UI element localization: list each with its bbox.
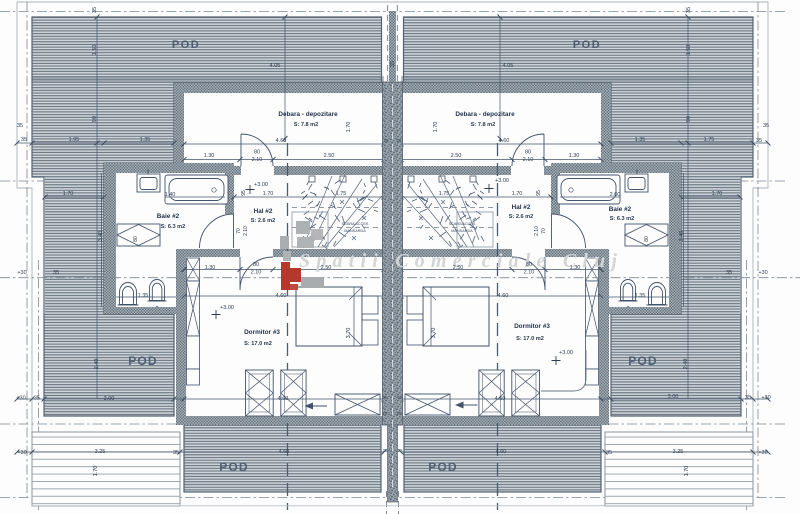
svg-text:2.10: 2.10 <box>523 157 534 163</box>
svg-text:3.70: 3.70 <box>431 328 437 339</box>
svg-text:1.70: 1.70 <box>433 122 439 133</box>
svg-text:1.35: 1.35 <box>635 137 646 143</box>
svg-text:80: 80 <box>254 150 260 156</box>
svg-text:4.60: 4.60 <box>498 293 509 299</box>
svg-text:1.75: 1.75 <box>439 191 450 197</box>
svg-text:4.60: 4.60 <box>495 396 506 402</box>
svg-text:1.70: 1.70 <box>512 191 523 197</box>
svg-text:MANSARDA: MANSARDA <box>344 229 366 233</box>
svg-text:35: 35 <box>92 7 98 13</box>
svg-text:35: 35 <box>17 123 23 129</box>
svg-text:+3.00: +3.00 <box>254 182 268 188</box>
svg-text:35: 35 <box>745 395 751 401</box>
svg-text:25: 25 <box>396 411 402 416</box>
svg-text:1.35: 1.35 <box>140 137 151 143</box>
svg-text:1.30: 1.30 <box>569 153 580 159</box>
svg-text:2.10: 2.10 <box>243 226 249 236</box>
svg-text:80: 80 <box>525 150 531 156</box>
svg-text:1.35: 1.35 <box>138 293 149 299</box>
svg-text:2.60: 2.60 <box>610 192 621 198</box>
svg-text:4.60: 4.60 <box>278 396 289 402</box>
svg-text:70: 70 <box>541 228 547 234</box>
svg-text:POD: POD <box>573 39 601 51</box>
svg-text:35: 35 <box>21 137 27 143</box>
svg-text:35: 35 <box>763 123 769 129</box>
svg-text:2.50: 2.50 <box>451 153 462 159</box>
svg-text:95: 95 <box>536 190 542 196</box>
svg-text:1.70: 1.70 <box>63 191 74 197</box>
svg-text:25: 25 <box>383 138 389 143</box>
svg-text:35: 35 <box>756 138 762 144</box>
svg-text:+30: +30 <box>761 395 770 401</box>
svg-text:1.35: 1.35 <box>635 293 646 299</box>
svg-text:35: 35 <box>686 7 692 13</box>
svg-text:S: 7.8 m2: S: 7.8 m2 <box>294 122 319 128</box>
svg-text:75: 75 <box>382 411 388 416</box>
svg-text:1.50: 1.50 <box>92 45 98 56</box>
svg-text:4.60: 4.60 <box>279 449 290 455</box>
svg-text:+3.00: +3.00 <box>559 350 573 356</box>
svg-text:1.70: 1.70 <box>93 466 99 477</box>
svg-text:35: 35 <box>390 61 396 67</box>
svg-text:3.40: 3.40 <box>98 231 104 242</box>
svg-text:4.60: 4.60 <box>496 449 507 455</box>
svg-text:+30: +30 <box>17 450 26 456</box>
svg-text:1.70: 1.70 <box>346 122 352 133</box>
svg-text:+3.00: +3.00 <box>495 178 509 184</box>
svg-text:35: 35 <box>53 270 59 276</box>
svg-text:POD: POD <box>172 39 200 51</box>
svg-text:Hal #2: Hal #2 <box>512 204 531 211</box>
svg-text:3.00: 3.00 <box>104 396 115 402</box>
svg-text:35: 35 <box>34 396 40 402</box>
svg-text:25: 25 <box>382 395 388 400</box>
svg-text:25: 25 <box>396 138 402 143</box>
svg-text:1.70: 1.70 <box>712 191 723 197</box>
svg-text:1.75: 1.75 <box>704 137 715 143</box>
svg-text:2.10: 2.10 <box>534 226 540 236</box>
svg-text:2.50: 2.50 <box>321 265 332 271</box>
svg-text:+30: +30 <box>758 450 767 456</box>
svg-text:35: 35 <box>173 450 179 456</box>
svg-text:2.10: 2.10 <box>252 157 263 163</box>
svg-text:+30: +30 <box>16 396 25 402</box>
svg-text:S: 17.0 m2: S: 17.0 m2 <box>244 341 272 347</box>
svg-text:3.40: 3.40 <box>679 231 685 242</box>
svg-text:2.50: 2.50 <box>324 153 335 159</box>
svg-text:95: 95 <box>241 190 247 196</box>
svg-text:Debara - depozitare: Debara - depozitare <box>455 111 515 118</box>
svg-text:25: 25 <box>397 395 403 400</box>
svg-text:3.00: 3.00 <box>668 394 679 400</box>
svg-text:80: 80 <box>133 236 139 242</box>
svg-text:3.25: 3.25 <box>673 449 684 455</box>
svg-text:Baie #2: Baie #2 <box>157 213 180 220</box>
svg-text:Baie #2: Baie #2 <box>609 206 632 213</box>
svg-text:+3.00: +3.00 <box>220 305 234 311</box>
svg-text:35: 35 <box>606 450 612 456</box>
svg-text:S: 2.6 m2: S: 2.6 m2 <box>251 218 276 224</box>
svg-text:80: 80 <box>526 262 532 268</box>
svg-text:SCARA ACCES: SCARA ACCES <box>342 222 369 226</box>
svg-text:1.30: 1.30 <box>204 153 215 159</box>
svg-text:25: 25 <box>382 448 388 453</box>
svg-text:3.70: 3.70 <box>346 328 352 339</box>
svg-text:80: 80 <box>644 236 650 242</box>
svg-text:1.75: 1.75 <box>336 191 347 197</box>
svg-text:25: 25 <box>397 448 403 453</box>
svg-text:2.40: 2.40 <box>94 359 100 370</box>
svg-text:POD: POD <box>128 354 158 368</box>
svg-text:90: 90 <box>92 116 98 122</box>
svg-text:3.25: 3.25 <box>95 449 106 455</box>
svg-text:SCARA ACCES: SCARA ACCES <box>449 222 476 226</box>
svg-text:2.40: 2.40 <box>683 359 689 370</box>
svg-text:S: 17.0 m2: S: 17.0 m2 <box>516 336 544 342</box>
svg-text:S: 2.6 m2: S: 2.6 m2 <box>509 214 534 220</box>
svg-text:Dormitor #3: Dormitor #3 <box>514 323 550 330</box>
svg-text:80: 80 <box>253 262 259 268</box>
svg-text:1.70: 1.70 <box>263 191 274 197</box>
svg-text:+30: +30 <box>758 270 767 276</box>
svg-text:35: 35 <box>726 270 732 276</box>
svg-text:4.05: 4.05 <box>503 63 514 69</box>
svg-text:+30: +30 <box>17 270 26 276</box>
svg-text:2.10: 2.10 <box>251 270 262 276</box>
svg-text:1.30: 1.30 <box>205 265 216 271</box>
svg-text:4.60: 4.60 <box>276 293 287 299</box>
svg-text:1.70: 1.70 <box>684 466 690 477</box>
svg-text:1.40: 1.40 <box>165 192 176 198</box>
svg-text:POD: POD <box>219 460 249 474</box>
svg-text:Hal #2: Hal #2 <box>254 208 273 215</box>
svg-text:S: 7.8 m2: S: 7.8 m2 <box>471 122 496 128</box>
svg-text:Debara - depozitare: Debara - depozitare <box>278 111 338 118</box>
svg-text:S: 6.3 m2: S: 6.3 m2 <box>610 216 635 222</box>
svg-text:70: 70 <box>236 228 242 234</box>
svg-text:1.30: 1.30 <box>570 265 581 271</box>
svg-text:POD: POD <box>428 460 458 474</box>
svg-text:1.50: 1.50 <box>686 45 692 56</box>
svg-text:POD: POD <box>628 354 658 368</box>
svg-text:2.10: 2.10 <box>524 270 535 276</box>
svg-text:MANSARDA: MANSARDA <box>451 229 473 233</box>
svg-text:90: 90 <box>686 116 692 122</box>
svg-text:S: 6.3 m2: S: 6.3 m2 <box>161 224 186 230</box>
svg-text:2.50: 2.50 <box>453 265 464 271</box>
svg-text:4.60: 4.60 <box>499 138 510 144</box>
svg-text:4.60: 4.60 <box>276 138 287 144</box>
svg-text:1.95: 1.95 <box>69 137 80 143</box>
svg-text:4.05: 4.05 <box>270 63 281 69</box>
svg-text:Dormitor #3: Dormitor #3 <box>244 329 280 336</box>
